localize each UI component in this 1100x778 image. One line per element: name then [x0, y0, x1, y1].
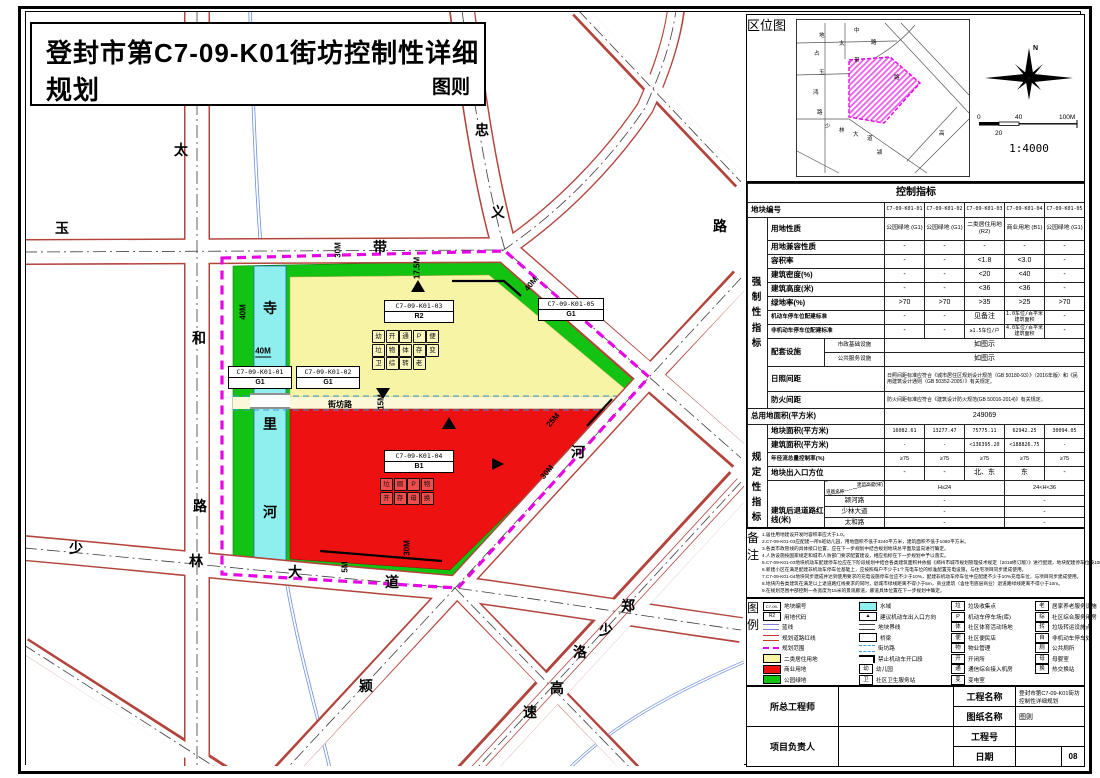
- row-label: 容积率: [768, 255, 885, 269]
- legend-item-label: 居家养老服务设施: [1052, 602, 1097, 610]
- legend-symbol-swatch-yellow: [763, 654, 781, 663]
- vertical-label-char: 注: [747, 548, 759, 562]
- legend-symbol-box-glyph: 转: [1035, 622, 1049, 632]
- value-cell: <36: [1005, 283, 1045, 297]
- legend-item-label: 垃圾收集点: [968, 602, 996, 610]
- value-cell: -: [1045, 283, 1085, 297]
- value-cell: -: [925, 269, 965, 283]
- legend-symbol-parcel-line: [859, 624, 875, 630]
- notes-title: 备注: [747, 529, 759, 597]
- value-cell: -: [1005, 241, 1045, 255]
- value-cell: -: [885, 283, 925, 297]
- legend-item-label: 非机动车停车处: [1052, 634, 1091, 642]
- legend-symbol-box-glyph: 自: [1035, 633, 1049, 643]
- legend-symbol-road-redline: [763, 635, 779, 641]
- note-line: 6.新建小区在满足配建非机动车停车位基础上，应按照每户不少于1个充电车位的标准配…: [762, 566, 1100, 573]
- value-cell: 16082.61: [885, 425, 925, 439]
- legend-item-label: 规划范围: [782, 644, 804, 652]
- vertical-label-char: 备: [747, 531, 759, 545]
- project-no-value: [1016, 727, 1084, 747]
- value-cell: 见备注: [965, 311, 1005, 325]
- group-label-prescriptive: 规定性指标: [748, 425, 768, 529]
- drawing-name-value: 图则: [1016, 707, 1084, 727]
- row-label: 地块出入口方位: [768, 467, 885, 481]
- value-cell: <136395.20: [965, 439, 1005, 453]
- notes-text: 1.居住用地建设开发时容积率应大于1.0。2.C7-09-K01-03应配建一所…: [759, 529, 1100, 597]
- legend-item: 桥梁: [859, 634, 947, 642]
- svg-text:0: 0: [977, 114, 981, 121]
- legend-item: 母母婴室: [1035, 655, 1100, 663]
- legend-symbol-bridge: [859, 633, 877, 642]
- road-name-cell: 少林大道: [825, 507, 885, 518]
- legend-item: 自非机动车停车处: [1035, 634, 1100, 642]
- legend-item: 通通信综合接入机房: [951, 665, 1031, 673]
- legend-column: 老居家养老服务设施综社区综合服务用房转垃圾转运设施点自非机动车停车处厕公共厕所母…: [1035, 602, 1100, 685]
- legend-panel: 图例 C7-09-K01-01地块编号R2用地代码蓝线规划道路红线规划范围二类居…: [746, 598, 1085, 686]
- group-label-mandatory: 强制性指标: [748, 218, 768, 409]
- legend-symbol-box-glyph: 垃: [951, 601, 965, 611]
- legend-item: 幼幼儿园: [859, 665, 947, 673]
- row-label: 配套设施: [768, 339, 825, 367]
- row-label: 用地性质: [768, 218, 885, 241]
- note-line: 8.地块内各类建筑在满足以上退道路红线要求的同时，退城市绿线距离不得小于5m，商…: [762, 580, 1100, 587]
- legend-item: 换热交换站: [1035, 665, 1100, 673]
- legend-symbol-blue-line: [763, 624, 779, 630]
- sub-label: 市政基础设施: [825, 339, 885, 353]
- legend-item-label: 社区体育活动场地: [968, 623, 1013, 631]
- project-name-label: 工程名称: [954, 687, 1016, 707]
- date-label: 日期: [954, 747, 1016, 766]
- row-label: 总用地面积(平方米): [748, 409, 885, 425]
- note-line: 9.在规划范围中部控制一条宽度为15米的景观廊道，廊道具体位置在下一步规划中确定…: [762, 587, 1100, 594]
- row-label: 防火间距: [768, 392, 885, 409]
- note-line: 1.居住用地建设开发时容积率应大于1.0。: [762, 531, 1100, 538]
- value-cell: -: [965, 241, 1005, 255]
- page-number: 08: [1062, 747, 1084, 766]
- north-label: N: [1033, 45, 1038, 52]
- legend-item-label: 公共厕所: [1052, 644, 1074, 652]
- value-cell: 防火间距标准应符合《建筑设计防火规范(GB 50016-2014)》有关规定。: [885, 392, 1085, 409]
- legend-item-label: 幼儿园: [876, 665, 893, 673]
- value-cell: -: [1045, 325, 1085, 339]
- legend-item: 禁止机动车开口段: [859, 655, 947, 663]
- diagonal-header: 建筑高度(米)道路名称: [825, 481, 885, 496]
- legend-column: 水域▲建议机动车出入口方向地块界线桥梁街坊路禁止机动车开口段幼幼儿园卫社区卫生服…: [859, 602, 947, 685]
- control-indicators-panel: 控制指标地块编号C7-09-K01-01C7-09-K01-02C7-09-K0…: [746, 182, 1085, 528]
- legend-symbol-box-glyph: 便: [951, 633, 965, 643]
- legend-items: C7-09-K01-01地块编号R2用地代码蓝线规划道路红线规划范围二类居住用地…: [759, 599, 1100, 685]
- legend-item-label: 规划道路红线: [782, 634, 816, 642]
- legend-symbol-box-glyph: 通: [951, 664, 965, 674]
- value-cell: ≥75: [925, 453, 965, 467]
- sub-label: 公共服务设施: [825, 353, 885, 367]
- minimap-street-label: 道: [867, 134, 873, 142]
- map-scale-text: 1:4000: [1009, 142, 1049, 155]
- value-cell: >35: [965, 297, 1005, 311]
- value-cell: <20: [965, 269, 1005, 283]
- value-cell: 1.0车位/百平米建筑面积: [1005, 311, 1045, 325]
- bridge: [250, 393, 290, 409]
- setback-col-header: H≤24: [885, 481, 1005, 496]
- value-cell: -: [1045, 311, 1085, 325]
- value-cell: >70: [885, 297, 925, 311]
- legend-symbol-box-glyph: 物: [951, 643, 965, 653]
- minimap-street-label: 颍: [877, 148, 883, 156]
- chief-engineer-label: 所总工程师: [747, 687, 839, 727]
- value-cell: 13277.47: [925, 425, 965, 439]
- value-cell: 如图示: [885, 339, 1085, 353]
- legend-item: 老居家养老服务设施: [1035, 602, 1100, 610]
- value-cell: -: [1045, 439, 1085, 453]
- legend-item-label: 垃圾转运设施点: [1052, 623, 1091, 631]
- scale-bar: 0 40 100M 20: [975, 112, 1083, 138]
- location-minimap: 地占玉鸿路太中带路路少林大道颍高: [796, 19, 970, 177]
- legend-item: 商业用地: [763, 665, 855, 673]
- value-cell: -: [1005, 518, 1085, 529]
- row-label: 用地兼容性质: [768, 241, 885, 255]
- row-label: 地块面积(平方米): [768, 425, 885, 439]
- legend-symbol-box-glyph: 厕: [1035, 643, 1049, 653]
- road-name-cell: 颍河路: [825, 496, 885, 507]
- zone-lane-band: [233, 397, 627, 409]
- note-line: 2.C7-09-K01-03应配建一所6班幼儿园，用地面积不低于3240平方米，…: [762, 538, 1100, 545]
- legend-symbol-plan-boundary: [763, 647, 779, 649]
- legend-symbol-box-glyph: P: [951, 612, 965, 622]
- legend-item-label: 公园绿地: [784, 676, 806, 684]
- legend-item: 地块界线: [859, 623, 947, 631]
- value-cell: >25: [1005, 297, 1045, 311]
- legend-item-label: 机动车停车场(库): [968, 613, 1011, 621]
- vertical-label-char: 位: [760, 18, 773, 33]
- legend-item: 垃垃圾收集点: [951, 602, 1031, 610]
- legend-column: C7-09-K01-01地块编号R2用地代码蓝线规划道路红线规划范围二类居住用地…: [763, 602, 855, 685]
- project-lead-label: 项目负责人: [747, 727, 839, 766]
- value-cell: ≥1.5车位/户: [965, 325, 1005, 339]
- value-cell: -: [1045, 255, 1085, 269]
- value-cell: 公园绿地 (G1): [885, 218, 925, 241]
- plan-sheet: 街坊路 太和路玉带忠义路路少林大道颍河郑少洛高速寺里河40M40M30M17.5…: [0, 0, 1100, 778]
- legend-item: 规划道路红线: [763, 634, 855, 642]
- value-cell: 4.0车位/百平米建筑面积: [1005, 325, 1045, 339]
- chief-engineer-value: [839, 687, 954, 727]
- value-cell: ≥75: [965, 453, 1005, 467]
- notes-panel: 备注 1.居住用地建设开发时容积率应大于1.0。2.C7-09-K01-03应配…: [746, 528, 1085, 598]
- value-cell: 30094.05: [1045, 425, 1085, 439]
- legend-symbol-box-glyph: 幼: [859, 664, 873, 674]
- river-strip: [254, 266, 286, 576]
- minimap-street-label: 路: [894, 73, 900, 81]
- value-cell: -: [1045, 241, 1085, 255]
- legend-symbol-swatch-red: [763, 665, 781, 674]
- row-label: 非机动车停车位配建标准: [768, 325, 885, 339]
- value-cell: <188826.75: [1005, 439, 1045, 453]
- value-cell: -: [925, 255, 965, 269]
- legend-item: P机动车停车场(库): [951, 613, 1031, 621]
- minimap-street-label: 高: [939, 129, 945, 137]
- legend-item: 变变电室: [951, 676, 1031, 684]
- value-cell: <40: [1005, 269, 1045, 283]
- legend-item-label: 蓝线: [782, 623, 793, 631]
- value-cell: >70: [1045, 297, 1085, 311]
- parcel-id-cell: C7-09-K01-05: [1045, 203, 1085, 218]
- legend-symbol-box-glyph: 变: [951, 675, 965, 685]
- minimap-street-label: 林: [839, 126, 845, 134]
- parcel-id-cell: C7-09-K01-04: [1005, 203, 1045, 218]
- value-cell: -: [885, 269, 925, 283]
- legend-symbol-no-entry: [859, 655, 875, 663]
- drawing-title: 登封市第C7-09-K01街坊控制性详细规划: [46, 33, 484, 107]
- legend-item-label: 地块编号: [784, 602, 806, 610]
- legend-column: 垃垃圾收集点P机动车停车场(库)体社区体育活动场地便社区便民店物物业管理开开闭所…: [951, 602, 1031, 685]
- legend-item: 综社区综合服务用房: [1035, 613, 1100, 621]
- row-label: 建筑高度(米): [768, 283, 885, 297]
- legend-item-label: 物业管理: [968, 644, 990, 652]
- legend-item-label: 街坊路: [878, 644, 895, 652]
- value-cell: -: [885, 241, 925, 255]
- setback-col-header: 24<H<36: [1005, 481, 1085, 496]
- value-cell: -: [885, 507, 1005, 518]
- value-cell: ≥75: [885, 453, 925, 467]
- location-map-tools: N 0 40 100M 20 1:4000: [974, 15, 1084, 181]
- note-line: 4.人防设施按国家规定和城市人防部门要求配置建设，相应指标在下一步规划中予以落实…: [762, 552, 1100, 559]
- legend-item: 蓝线: [763, 623, 855, 631]
- legend-item: 卫社区卫生服务站: [859, 676, 947, 684]
- value-cell: >70: [925, 297, 965, 311]
- legend-item: R2用地代码: [763, 613, 855, 621]
- row-label: 建筑密度(%): [768, 269, 885, 283]
- value-cell: ≥75: [1045, 453, 1085, 467]
- legend-item: 规划范围: [763, 644, 855, 652]
- minimap-street-label: 地: [819, 31, 825, 39]
- row-label: 日照间距: [768, 367, 885, 392]
- legend-item: 二类居住用地: [763, 655, 855, 663]
- legend-item-label: 水域: [880, 602, 891, 610]
- value-cell: -: [925, 241, 965, 255]
- legend-symbol-box-glyph: 卫: [859, 675, 873, 685]
- legend-item: ▲建议机动车出入口方向: [859, 613, 947, 621]
- legend-symbol-box-glyph: 母: [1035, 654, 1049, 664]
- svg-text:40: 40: [1015, 114, 1023, 121]
- legend-item-label: 社区便民店: [968, 634, 996, 642]
- value-cell: 北、东: [965, 467, 1005, 481]
- legend-item: 体社区体育活动场地: [951, 623, 1031, 631]
- value-cell: 62942.25: [1005, 425, 1045, 439]
- row-label-setback: 建筑后退道路红线(米): [768, 481, 825, 529]
- date-value: [1016, 747, 1062, 766]
- row-label: 绿地率(%): [768, 297, 885, 311]
- legend-item-label: 通信综合接入机房: [968, 665, 1013, 673]
- legend-symbol-box-glyph: 换: [1035, 664, 1049, 674]
- row-label: 年径流总量控制率(%): [768, 453, 885, 467]
- minimap-street-label: 少: [825, 123, 831, 130]
- value-cell: -: [1045, 467, 1085, 481]
- legend-item-label: 地块界线: [878, 623, 900, 631]
- legend-item: 开开闭所: [951, 655, 1031, 663]
- legend-item: 街坊路: [859, 644, 947, 652]
- row-label: 地块编号: [748, 203, 885, 218]
- legend-symbol-entry-arrow: ▲: [859, 612, 877, 621]
- value-cell: 二类居住用地 (R2): [965, 218, 1005, 241]
- legend-item: 便社区便民店: [951, 634, 1031, 642]
- svg-text:20: 20: [995, 130, 1003, 137]
- legend-symbol-parcel-code: C7-09-K01-01: [763, 602, 781, 611]
- value-cell: -: [1045, 269, 1085, 283]
- value-cell: -: [885, 439, 925, 453]
- legend-symbol-box-glyph: 开: [951, 654, 965, 664]
- value-cell: -: [1005, 507, 1085, 518]
- note-line: 7.C7-09-K01-04地块同步建成并达到使用要求的充电设施停车位应不少于1…: [762, 573, 1100, 580]
- value-cell: 日照间距标准应符合《城市居住区规划设计规范（GB 50180-93）》（2016…: [885, 367, 1085, 392]
- legend-item-label: 社区卫生服务站: [876, 676, 915, 684]
- vertical-label-char: 图: [773, 18, 786, 33]
- vertical-label-char: 例: [747, 618, 759, 632]
- value-cell: 公园绿地 (G1): [1045, 218, 1085, 241]
- diagonal-bottom-label: 道路名称: [826, 489, 844, 494]
- legend-item: 水域: [859, 602, 947, 610]
- note-line: 3.各类市政管线的具体接口位置，应在下一步规划中结合规划地块总平面及竖向进行确定…: [762, 545, 1100, 552]
- parcel-id-cell: C7-09-K01-03: [965, 203, 1005, 218]
- minimap-street-label: 玉: [819, 69, 825, 76]
- value-cell: -: [925, 467, 965, 481]
- legend-item: 厕公共厕所: [1035, 644, 1100, 652]
- value-cell: 公园绿地 (G1): [925, 218, 965, 241]
- location-map-title: 区位图: [747, 15, 792, 181]
- legend-symbol-swatch-green: [763, 675, 781, 684]
- value-cell: -: [885, 325, 925, 339]
- value-cell: -: [885, 311, 925, 325]
- legend-symbol-use-code: R2: [763, 612, 781, 621]
- note-line: 5.C7-09-K01-03地块机动车配建停车位应在下阶段规划中结合各类建筑面积…: [762, 559, 1100, 566]
- legend-item: C7-09-K01-01地块编号: [763, 602, 855, 610]
- minimap-street-label: 路: [817, 108, 823, 116]
- value-cell: ≥75: [1005, 453, 1045, 467]
- legend-item-label: 用地代码: [784, 613, 806, 621]
- minimap-street-label: 中: [854, 26, 860, 34]
- drawing-name-label: 图纸名称: [954, 707, 1016, 727]
- value-cell: 东: [1005, 467, 1045, 481]
- legend-item: 物物业管理: [951, 644, 1031, 652]
- legend-item: 公园绿地: [763, 676, 855, 684]
- legend-item-label: 变电室: [968, 676, 985, 684]
- north-arrow-icon: N: [979, 42, 1079, 108]
- location-map-panel: 区位图: [746, 14, 1085, 182]
- minimap-street-label: 带: [854, 57, 860, 64]
- value-cell: -: [925, 439, 965, 453]
- row-label: 建筑面积(平方米): [768, 439, 885, 453]
- value-cell: <36: [965, 283, 1005, 297]
- minimap-street-label: 路: [871, 38, 877, 46]
- value-cell: <1.8: [965, 255, 1005, 269]
- vertical-label-char: 图: [747, 601, 759, 615]
- legend-symbol-lane-dash: [859, 645, 875, 652]
- value-cell: -: [885, 467, 925, 481]
- project-lead-value: [839, 727, 954, 766]
- drawing-subtitle: 图则: [432, 72, 470, 99]
- project-name-value: 登封市第C7-09-K01街坊控制性详细规划: [1016, 687, 1084, 707]
- legend-item-label: 建议机动车出入口方向: [880, 613, 936, 621]
- table-title: 控制指标: [748, 184, 1085, 203]
- project-no-label: 工程号: [954, 727, 1016, 747]
- legend-item-label: 开闭所: [968, 655, 985, 663]
- legend-item-label: 母婴室: [1052, 655, 1069, 663]
- value-cell: -: [925, 325, 965, 339]
- legend-item-label: 热交换站: [1052, 665, 1074, 673]
- value-cell: -: [885, 518, 1005, 529]
- value-cell: 如图示: [885, 353, 1085, 367]
- value-cell: 75775.11: [965, 425, 1005, 439]
- drawing-title-box: 登封市第C7-09-K01街坊控制性详细规划 图则: [30, 22, 486, 106]
- parcel-id-cell: C7-09-K01-02: [925, 203, 965, 218]
- control-indicators-table: 控制指标地块编号C7-09-K01-01C7-09-K01-02C7-09-K0…: [747, 183, 1085, 528]
- legend-item: 转垃圾转运设施点: [1035, 623, 1100, 631]
- diagonal-top-label: 建筑高度(米): [857, 482, 883, 487]
- value-cell: -: [925, 311, 965, 325]
- value-cell: <3.0: [1005, 255, 1045, 269]
- legend-title: 图例: [747, 599, 759, 685]
- minimap-street-label: 太: [839, 39, 845, 47]
- minimap-street-label: 大: [853, 130, 859, 138]
- minimap-street-label: 占: [814, 49, 820, 57]
- road-name-cell: 太和路: [825, 518, 885, 529]
- value-cell: -: [1005, 496, 1085, 507]
- legend-symbol-swatch-cyan: [859, 602, 877, 611]
- value-cell: 商业用地 (B1): [1005, 218, 1045, 241]
- title-block: 所总工程师 项目负责人 工程名称 登封市第C7-09-K01街坊控制性详细规划 …: [746, 686, 1085, 767]
- value-cell: 249069: [885, 409, 1085, 425]
- svg-text:100M: 100M: [1059, 114, 1075, 121]
- value-cell: -: [885, 255, 925, 269]
- legend-item-label: 桥梁: [880, 634, 891, 642]
- legend-symbol-box-glyph: 综: [1035, 612, 1049, 622]
- minimap-street-label: 鸿: [813, 88, 819, 96]
- vertical-label-char: 区: [747, 18, 760, 33]
- value-cell: -: [925, 283, 965, 297]
- legend-item-label: 二类居住用地: [784, 655, 818, 663]
- legend-item-label: 禁止机动车开口段: [878, 655, 923, 663]
- legend-item-label: 商业用地: [784, 665, 806, 673]
- row-label: 机动车停车位配建标准: [768, 311, 885, 325]
- legend-item-label: 社区综合服务用房: [1052, 613, 1097, 621]
- legend-symbol-box-glyph: 体: [951, 622, 965, 632]
- value-cell: -: [885, 496, 1005, 507]
- legend-symbol-box-glyph: 老: [1035, 601, 1049, 611]
- parcel-id-cell: C7-09-K01-01: [885, 203, 925, 218]
